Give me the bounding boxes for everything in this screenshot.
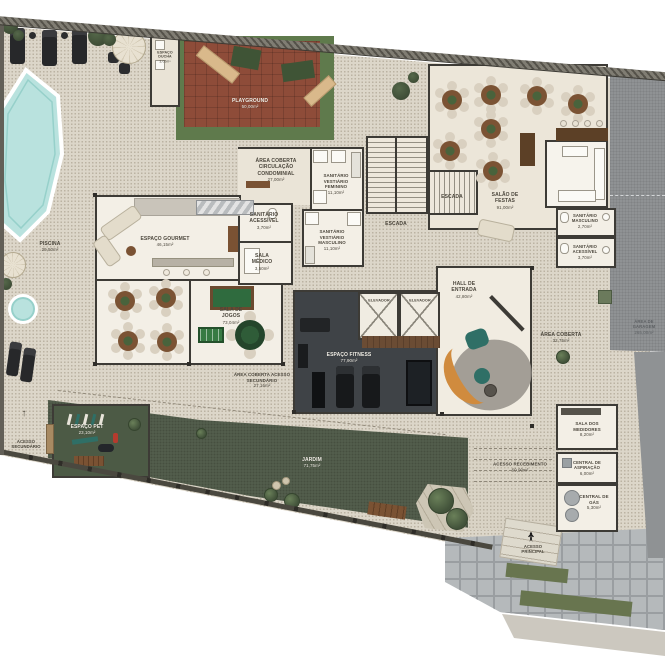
toilet-stall: [313, 150, 328, 163]
treadmill: [336, 366, 354, 408]
chair: [119, 63, 130, 74]
stair-rail: [395, 138, 397, 212]
swimming-pool: [0, 62, 82, 252]
label-jardim: JARDIM71,75m²: [290, 457, 334, 469]
label-espaco-fitness: ESPAÇO FITNESS77,90m²: [319, 352, 379, 364]
floor-plan: ↑ PISCINA29,50m² ESPAÇO DUCHA3,05m² PLAY…: [0, 0, 665, 665]
label-elevador-2: ELEVADOR: [402, 299, 438, 304]
party-table: [481, 119, 501, 139]
cable-station: [312, 372, 325, 408]
foosball-table: [198, 327, 224, 343]
label-acesso-principal: ACESSO PRINCIPAL: [513, 544, 553, 555]
label-elevador-1: ELEVADOR: [361, 299, 397, 304]
treadmill: [362, 366, 380, 408]
dumbbell-rack: [298, 344, 308, 368]
garage-dashed-line: [610, 195, 665, 196]
label-acesso-secundario: ACESSO SECUNDÁRIO: [4, 439, 48, 450]
tree: [446, 508, 468, 530]
kitchen-counter: [558, 190, 596, 202]
party-table: [483, 161, 503, 181]
spa-round-pool: [8, 294, 38, 324]
perimeter-wall-left: [0, 20, 4, 455]
label-escada: ESCADA: [379, 221, 413, 227]
bar-stool: [560, 120, 567, 127]
pet-tunnel: [98, 444, 114, 452]
label-area-garagem: ÁREA DE GARAGEM265,00m²: [623, 319, 665, 335]
arrow-up-icon: ↑: [21, 408, 26, 421]
label-salao-festas: SALÃO DE FESTAS91,00m²: [486, 192, 524, 210]
bar-stool: [584, 120, 591, 127]
pool-lounger: [42, 30, 57, 66]
dining-table: [156, 288, 176, 308]
label-sala-jogos: SALA DE JOGOS73,04m²: [215, 307, 247, 325]
bar-stool: [183, 269, 190, 276]
cabinet: [228, 226, 238, 252]
party-table: [527, 86, 547, 106]
bar-stool: [572, 120, 579, 127]
label-vestiario-feminino: SANITÁRIO VESTIÁRIO FEMININO11,10m²: [319, 173, 353, 195]
room-escada-servico: [428, 170, 478, 215]
label-espaco-pet: ESPAÇO PET23,10m²: [65, 424, 109, 436]
label-sanitario-masculino-festas: SANITÁRIO MASCULINO2,70m²: [565, 213, 605, 229]
bar-stool: [203, 269, 210, 276]
flower-pot: [282, 477, 290, 485]
pool-lounger: [72, 28, 87, 64]
label-sanitario-acessivel-festas: SANITÁRIO ACESSÍVEL3,70m²: [565, 244, 605, 260]
party-table: [481, 85, 501, 105]
bush: [392, 82, 410, 100]
label-espaco-gourmet: ESPAÇO GOURMET46,15m²: [133, 236, 197, 248]
room-gourmet-dining: [95, 279, 191, 365]
label-sala-medico: SALA MÉDICO3,50m²: [247, 253, 277, 271]
side-table: [29, 32, 36, 39]
coffee-table: [484, 384, 497, 397]
room-escada: [366, 136, 428, 214]
label-piscina: PISCINA29,50m²: [30, 241, 70, 253]
toilet-stall: [331, 150, 346, 163]
bush: [408, 72, 419, 83]
label-area-coberta-acesso: ÁREA COBERTA ACESSO SECUNDÁRIO27,16m²: [233, 372, 291, 389]
bush: [13, 30, 24, 41]
shrub: [196, 428, 207, 439]
flower-pot: [272, 481, 281, 490]
label-acesso-recebimento: ACESSO RECEBIMENTO60,00m²: [484, 462, 556, 473]
grill-counter: [196, 200, 254, 215]
mirror: [406, 360, 432, 406]
label-escada-2: ESCADA: [435, 194, 469, 200]
dining-table: [115, 291, 135, 311]
label-hall-entrada: HALL DE ENTRADA42,80m²: [444, 281, 484, 299]
label-vestiario-masculino: SANITÁRIO VESTIÁRIO MASCULINO11,10m²: [315, 229, 349, 251]
fire-hydrant-toy: [113, 433, 118, 443]
label-area-coberta: ÁREA COBERTA32,75m²: [538, 332, 584, 344]
shrub: [128, 418, 141, 431]
shower-tray: [155, 40, 165, 50]
bar-stool: [163, 269, 170, 276]
shower: [347, 212, 361, 226]
label-central-aspiracao: CENTRAL DE ASPIRAÇÃO6,00m²: [565, 460, 609, 476]
party-table: [442, 90, 462, 110]
delivery-driveway: [468, 438, 558, 530]
kitchen-island-sink: [562, 146, 588, 157]
bar-island: [520, 133, 535, 166]
sink-counter: [305, 246, 315, 264]
label-sala-medidores: SALA DOS MEDIDORES8,20m²: [567, 421, 607, 438]
label-playground: PLAYGROUND50,00m²: [222, 98, 278, 110]
weight-bench: [300, 318, 330, 332]
wood-slat-wall: [362, 336, 440, 348]
party-table: [440, 141, 460, 161]
side-table: [61, 32, 68, 39]
bar-counter: [152, 258, 234, 267]
meter-panel: [561, 408, 601, 415]
dining-table: [157, 332, 177, 352]
dining-table: [118, 331, 138, 351]
pouf: [474, 368, 490, 384]
label-circulacao: ÁREA COBERTA CIRCULAÇÃO CONDOMINIAL27,00…: [245, 158, 307, 182]
party-table: [568, 94, 588, 114]
label-espaco-ducha: ESPAÇO DUCHA3,05m²: [152, 50, 178, 63]
planter: [598, 290, 612, 304]
label-central-gas: CENTRAL DE GÁS5,30m²: [577, 494, 611, 511]
bar-stool: [596, 120, 603, 127]
toilet-stall: [305, 212, 319, 225]
label-sanitario-acessivel: SANITÁRIO ACESSÍVEL3,70m²: [247, 212, 281, 230]
bar-counter: [556, 128, 608, 141]
tree: [556, 350, 570, 364]
